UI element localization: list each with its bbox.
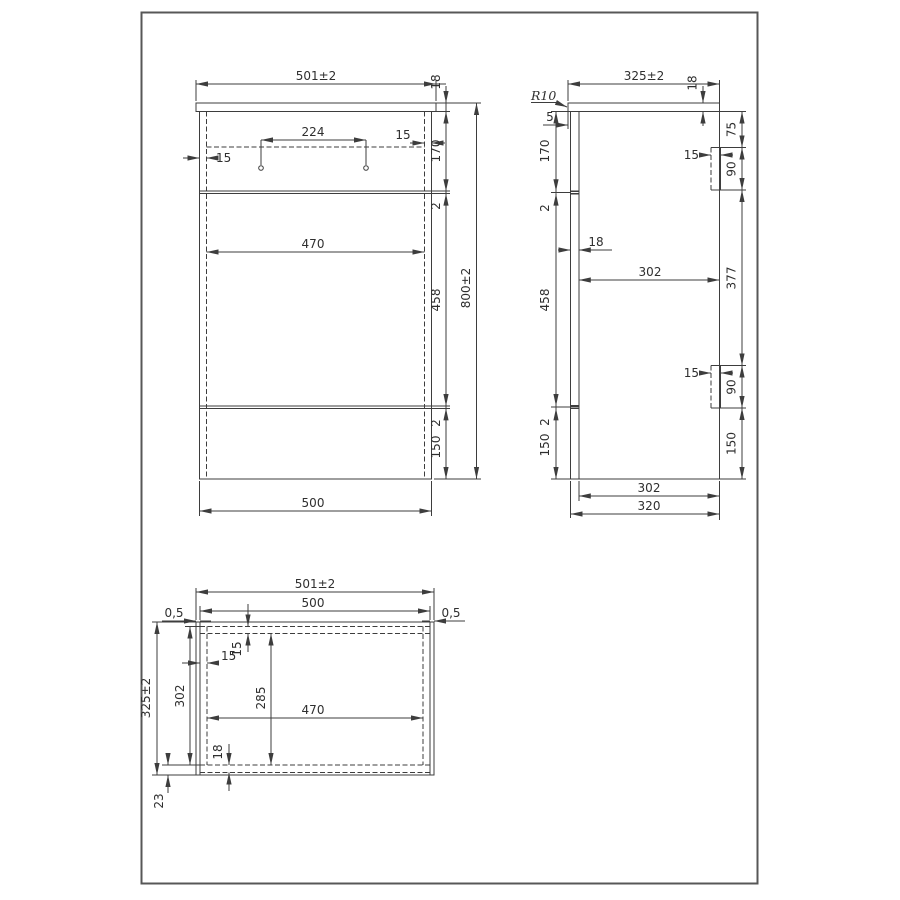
dim-label: R10	[530, 88, 556, 103]
dim-label: 377	[725, 267, 739, 290]
dim-side-lower-bracket: 15	[684, 366, 733, 380]
page-border	[142, 13, 758, 884]
dim-label: 0,5	[441, 606, 460, 620]
dim-front-section-chain: 18 170 2 458 2 150	[429, 74, 481, 479]
dim-plan-overall-depth: 325±2	[139, 622, 196, 775]
dim-side-worktop-thickness: 18	[686, 75, 704, 126]
dim-label: 302	[173, 685, 187, 708]
dim-plan-clear-depth: 285	[254, 634, 271, 766]
dim-side-back-panel: 18	[558, 235, 612, 250]
dim-label: 18	[211, 744, 225, 759]
handle-hole-right	[364, 166, 369, 171]
dim-plan-back-panel: 18	[211, 744, 229, 791]
dim-label: 90	[725, 161, 739, 176]
dim-label: 15	[216, 151, 231, 165]
dim-plan-carcass-width: 500	[200, 596, 430, 620]
technical-drawing: 224 501±2 15 15 470 500	[0, 0, 900, 900]
side-carcass	[571, 112, 720, 480]
dim-label: 224	[302, 125, 325, 139]
dim-label: 800±2	[459, 268, 473, 309]
dim-front-overall-height: 800±2	[459, 103, 477, 479]
dim-plan-inner-width: 470	[207, 703, 423, 718]
dim-side-left-chain: 170 2 458 2 150	[538, 112, 571, 480]
dim-side-upper-bracket: 15	[684, 148, 733, 162]
dim-label: 0,5	[164, 606, 183, 620]
handle-hole-left	[259, 166, 264, 171]
dim-label: 302	[638, 481, 661, 495]
dim-label: 2	[429, 202, 443, 210]
dim-label: 302	[639, 265, 662, 279]
side-view: R10 325±2 18 5 170	[530, 69, 746, 520]
dim-label: 15	[684, 366, 699, 380]
dim-label: 170	[429, 140, 443, 163]
dim-label: 15	[395, 128, 410, 142]
dim-label: 18	[588, 235, 603, 249]
dim-label: 501±2	[296, 69, 337, 83]
dim-label: 75	[725, 122, 739, 137]
dim-plan-front-inset: 15	[230, 604, 248, 657]
dim-front-inner-width: 470	[207, 237, 425, 252]
dim-label: 5	[546, 110, 554, 124]
dim-label: 325±2	[624, 69, 665, 83]
dim-side-bottom: 302 320	[571, 481, 720, 520]
dim-label: 170	[538, 140, 552, 163]
dim-label: 2	[538, 204, 552, 212]
front-carcass	[200, 112, 432, 480]
dim-label: 23	[152, 793, 166, 808]
dim-plan-back-assembly: 23	[152, 753, 168, 809]
dim-plan-right-gap: 0,5	[422, 606, 465, 621]
dim-plan-inner-depth: 302	[162, 627, 200, 766]
dim-label: 18	[429, 74, 443, 89]
front-hidden-lines	[207, 112, 425, 480]
dim-label: 18	[686, 75, 700, 90]
dim-side-right-chain: 75 90 377 90 150	[720, 112, 747, 480]
dim-front-handle-spacing: 224	[261, 125, 366, 140]
dim-label: 470	[302, 703, 325, 717]
dim-label: 15	[230, 641, 244, 656]
dim-label: 500	[302, 596, 325, 610]
dim-label: 150	[429, 436, 443, 459]
dim-front-left-inset: 15	[183, 151, 231, 165]
dim-label: 15	[684, 148, 699, 162]
front-handle-holes	[259, 140, 369, 170]
front-view: 224 501±2 15 15 470 500	[183, 69, 481, 516]
dim-label: 2	[429, 419, 443, 427]
side-worktop	[568, 103, 720, 112]
dim-label: 150	[725, 432, 739, 455]
dim-label: 470	[302, 237, 325, 251]
dim-label: 458	[429, 289, 443, 312]
dim-front-carcass-width: 500	[200, 481, 432, 516]
front-worktop	[196, 103, 436, 112]
dim-label: 325±2	[139, 678, 153, 719]
dim-label: 285	[254, 687, 268, 710]
drawing-page: 224 501±2 15 15 470 500	[0, 0, 900, 900]
dim-side-inner-depth: 302	[579, 265, 720, 280]
dim-label: 2	[538, 418, 552, 426]
dim-front-overall-width: 501±2	[196, 69, 446, 101]
dim-label: 501±2	[295, 577, 336, 591]
dim-label: 150	[538, 434, 552, 457]
dim-side-corner-radius: R10	[530, 88, 567, 107]
dim-label: 90	[725, 379, 739, 394]
plan-view: 501±2 500 0,5 0,5 325±2	[139, 577, 465, 809]
dim-plan-left-gap: 0,5	[162, 606, 211, 621]
dim-label: 320	[638, 499, 661, 513]
dim-label: 458	[538, 289, 552, 312]
dim-label: 500	[302, 496, 325, 510]
